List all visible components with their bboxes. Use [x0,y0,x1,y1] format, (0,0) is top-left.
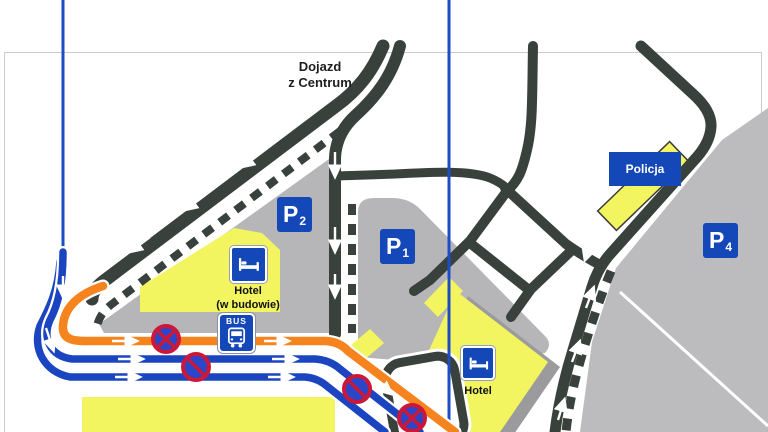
access-road-line2: z Centrum [256,75,384,91]
p4-letter: P [709,229,724,252]
hotel-construction-label: Hotel (w budowie) [188,284,308,312]
hotel-construction-sign [230,246,267,283]
bottom-yellow-zone [82,397,335,432]
p4-number: 4 [725,241,732,253]
hotel-construction-line2: (w budowie) [188,298,308,312]
map-artwork [0,0,768,432]
hotel-label: Hotel [438,384,518,398]
bus-stop-sign: BUS [218,313,255,353]
bus-icon [225,326,248,349]
road-east-branch [336,172,509,191]
no-parking-sign [183,354,209,380]
p2-letter: P [283,203,298,226]
hotel-construction-line1: Hotel [188,284,308,298]
parking-sign-p2: P2 [277,197,312,232]
police-sign: Policja [609,152,681,186]
no-stopping-sign [399,405,425,431]
p1-number: 1 [402,247,409,259]
no-parking-sign [344,376,370,402]
no-stopping-sign [153,326,179,352]
p2-number: 2 [299,215,306,227]
p1-letter: P [386,235,401,258]
bed-icon [235,251,262,278]
bed-icon [466,351,491,376]
bus-stop-label: BUS [226,316,247,326]
hotel-sign [461,346,495,380]
parking-sign-p4: P4 [703,223,738,258]
access-road-line1: Dojazd [256,59,384,75]
traffic-map: Dojazd z Centrum Żwirki i Wigury P2 P1 P… [0,0,768,432]
parking-sign-p1: P1 [380,229,415,264]
access-road-label: Dojazd z Centrum [256,59,384,91]
